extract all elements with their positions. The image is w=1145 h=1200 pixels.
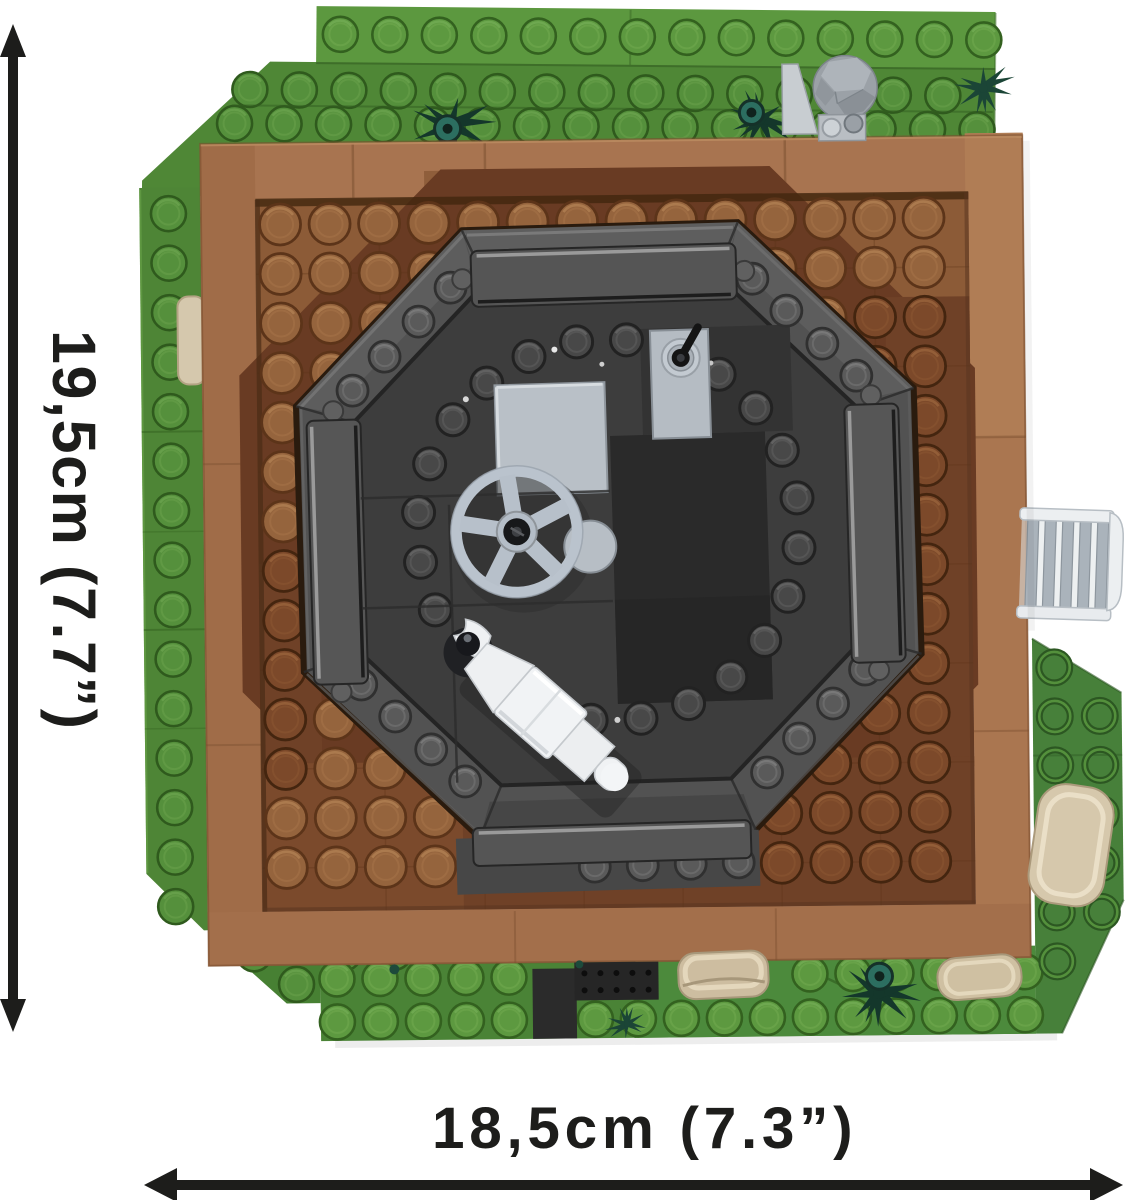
svg-text:19,5cm (7.7”): 19,5cm (7.7”) xyxy=(40,330,108,731)
svg-text:18,5cm (7.3”): 18,5cm (7.3”) xyxy=(432,1096,857,1161)
